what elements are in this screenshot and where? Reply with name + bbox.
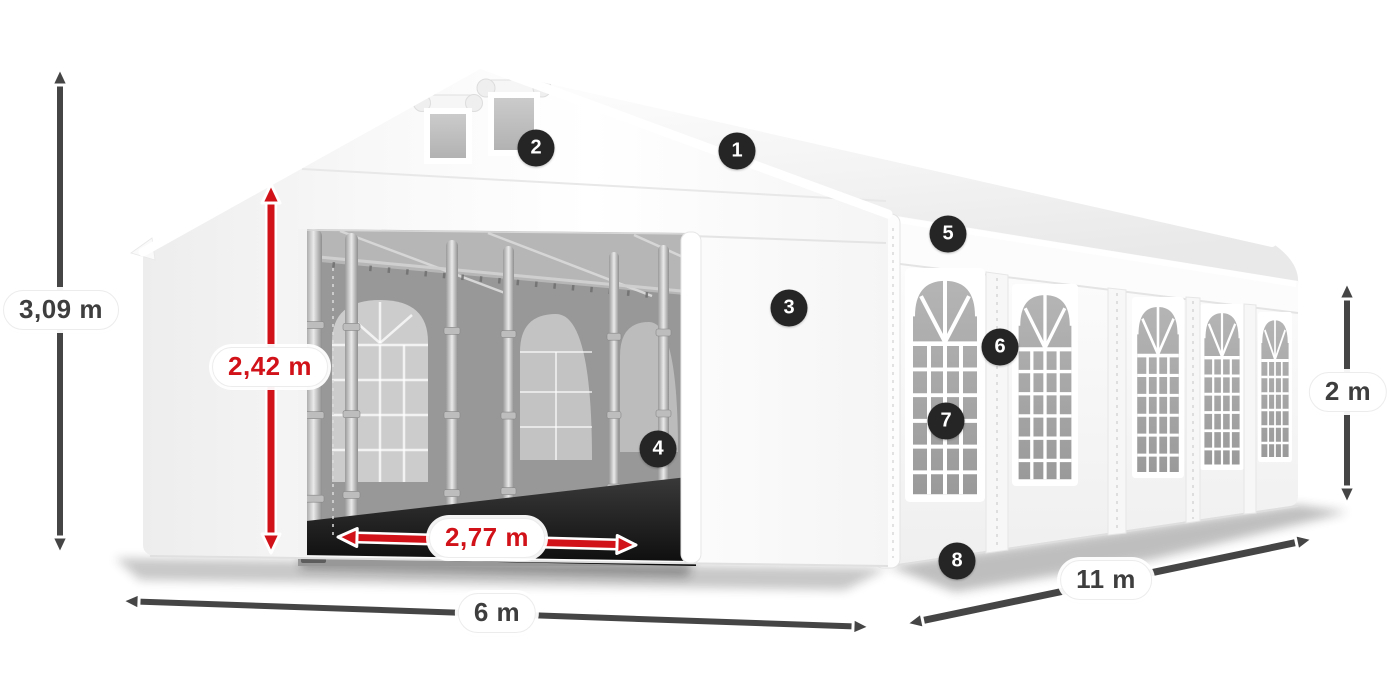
callout-badge-4: 4	[640, 431, 677, 468]
callout-badge-5: 5	[930, 216, 967, 253]
callout-badge-1: 1	[719, 133, 756, 170]
callout-badge-7: 7	[928, 403, 965, 440]
dim-door-width-label: 2,77 m	[429, 518, 545, 558]
callout-badge-8: 8	[939, 543, 976, 580]
dim-door-height-label: 2,42 m	[212, 347, 328, 387]
callout-badge-6: 6	[982, 329, 1019, 366]
door-flap-fold	[681, 232, 701, 563]
tent-illustration	[0, 0, 1400, 700]
dim-front-width-label: 6 m	[458, 593, 536, 633]
dim-wall-height-label: 2 m	[1309, 372, 1387, 412]
callout-badge-3: 3	[771, 290, 808, 327]
tent-dimension-diagram: 3,09 m 2,42 m 2,77 m 6 m 11 m 2 m 123456…	[0, 0, 1400, 700]
dim-side-length-label: 11 m	[1060, 560, 1152, 600]
callout-badge-2: 2	[518, 130, 555, 167]
door-interior	[298, 224, 696, 566]
dim-total-height-label: 3,09 m	[3, 290, 119, 330]
